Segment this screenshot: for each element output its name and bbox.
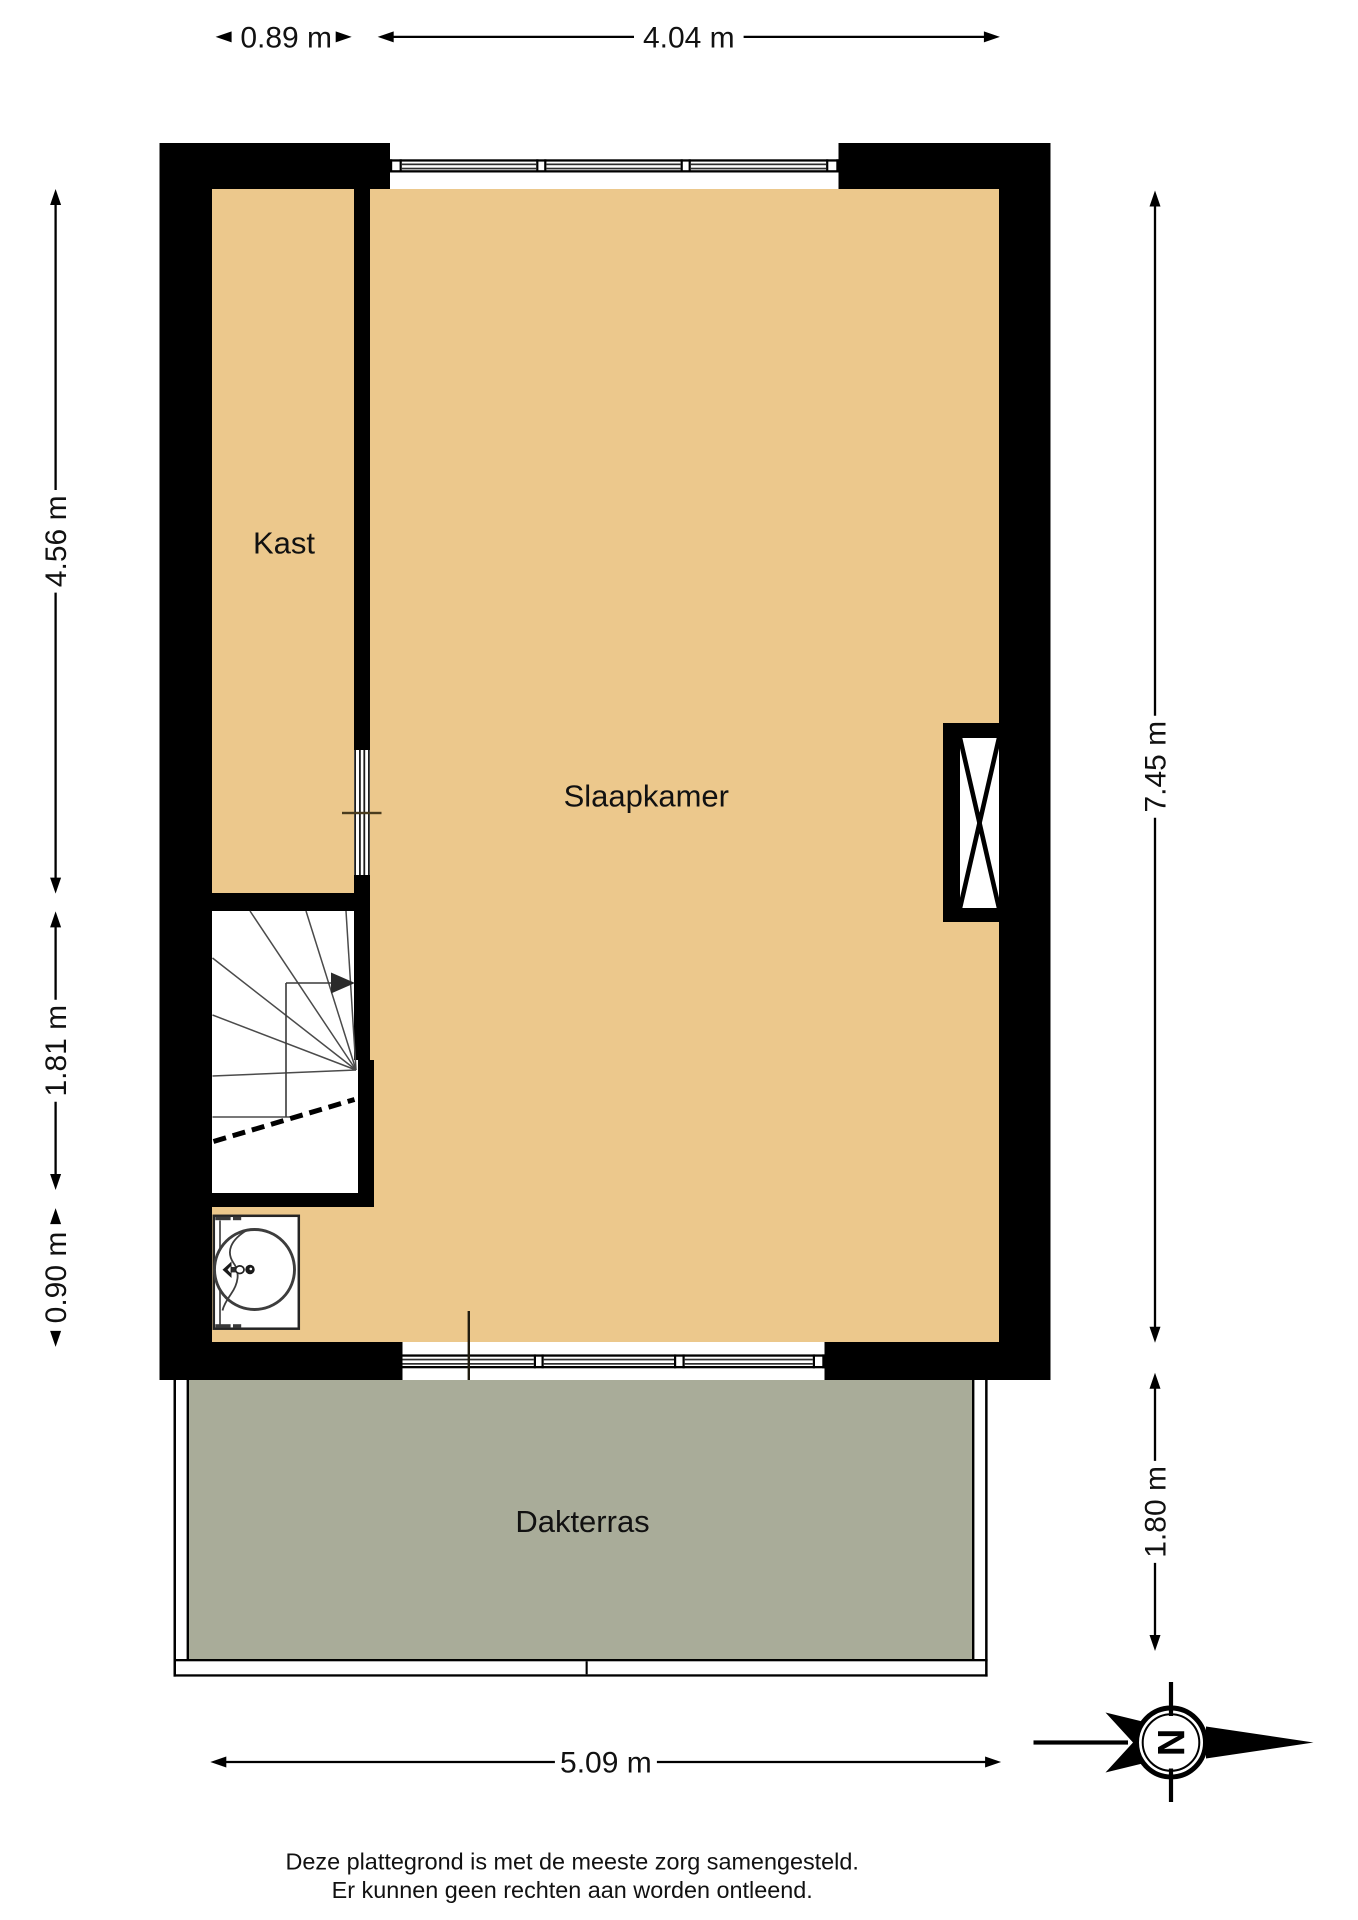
- svg-text:0.89 m: 0.89 m: [240, 21, 332, 54]
- svg-text:N: N: [1149, 1729, 1191, 1756]
- svg-text:5.09 m: 5.09 m: [560, 1746, 652, 1779]
- svg-text:4.04 m: 4.04 m: [643, 21, 735, 54]
- svg-text:1.80 m: 1.80 m: [1139, 1466, 1172, 1558]
- svg-text:Deze plattegrond is met de mee: Deze plattegrond is met de meeste zorg s…: [286, 1849, 859, 1875]
- svg-text:0.90 m: 0.90 m: [40, 1232, 73, 1324]
- svg-text:Er kunnen geen rechten aan wor: Er kunnen geen rechten aan worden ontlee…: [332, 1877, 813, 1903]
- svg-text:Slaapkamer: Slaapkamer: [564, 779, 729, 814]
- svg-text:Kast: Kast: [253, 526, 315, 561]
- svg-text:7.45 m: 7.45 m: [1139, 721, 1172, 813]
- svg-text:1.81 m: 1.81 m: [40, 1005, 73, 1097]
- svg-text:4.56 m: 4.56 m: [40, 495, 73, 587]
- svg-text:Dakterras: Dakterras: [515, 1504, 649, 1539]
